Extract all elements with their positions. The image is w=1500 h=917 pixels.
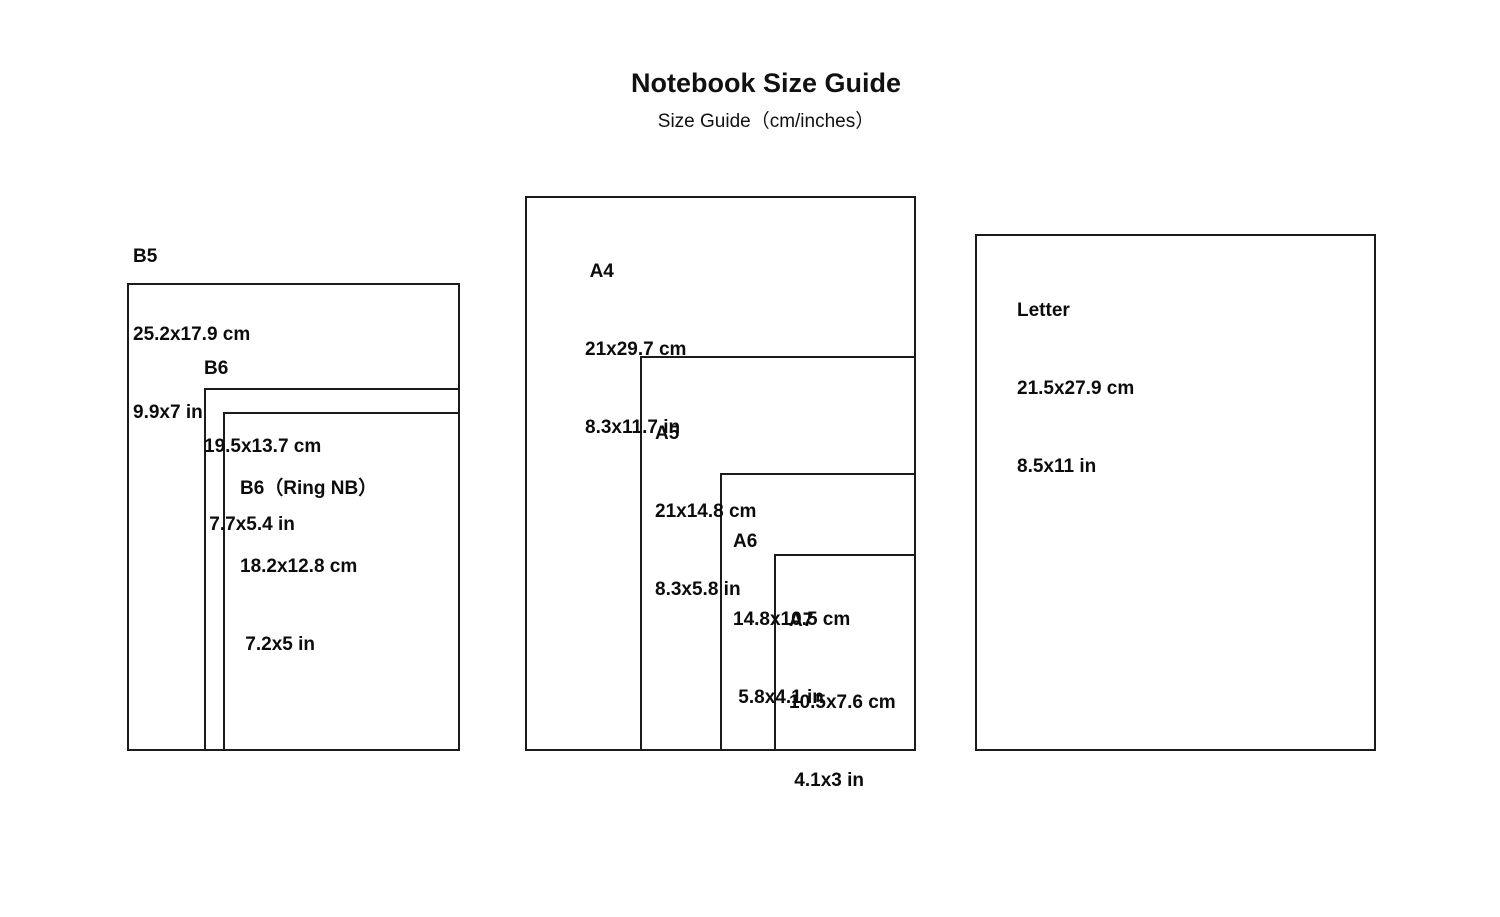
size-inches-a7: 4.1x3 in (789, 768, 896, 794)
size-name-b6: B6 (204, 356, 321, 382)
size-name-a4: A4 (585, 259, 686, 285)
header: Notebook Size Guide Size Guide（cm/inches… (16, 68, 1500, 133)
size-name-letter: Letter (1017, 298, 1134, 324)
page-title: Notebook Size Guide (16, 68, 1500, 99)
size-name-a6: A6 (733, 529, 850, 555)
size-name-b6-ring-nb: B6（Ring NB） (240, 476, 377, 502)
size-cm-letter: 21.5x27.9 cm (1017, 376, 1134, 402)
size-cm-b6-ring-nb: 18.2x12.8 cm (240, 554, 377, 580)
size-name-a7: A7 (789, 608, 896, 634)
size-inches-letter: 8.5x11 in (1017, 454, 1134, 480)
size-inches-b6-ring-nb: 7.2x5 in (240, 632, 377, 658)
size-cm-a7: 10.5x7.6 cm (789, 690, 896, 716)
size-label-letter: Letter 21.5x27.9 cm 8.5x11 in (1017, 246, 1134, 532)
size-name-a5: A5 (655, 421, 756, 447)
size-name-b5: B5 (133, 244, 250, 270)
size-label-b6-ring-nb: B6（Ring NB） 18.2x12.8 cm 7.2x5 in (240, 424, 377, 710)
page-subtitle: Size Guide（cm/inches） (16, 106, 1500, 133)
size-label-a7: A7 10.5x7.6 cm 4.1x3 in (789, 556, 896, 846)
notebook-size-guide-diagram: Notebook Size Guide Size Guide（cm/inches… (0, 0, 1500, 917)
size-cm-a4: 21x29.7 cm (585, 337, 686, 363)
